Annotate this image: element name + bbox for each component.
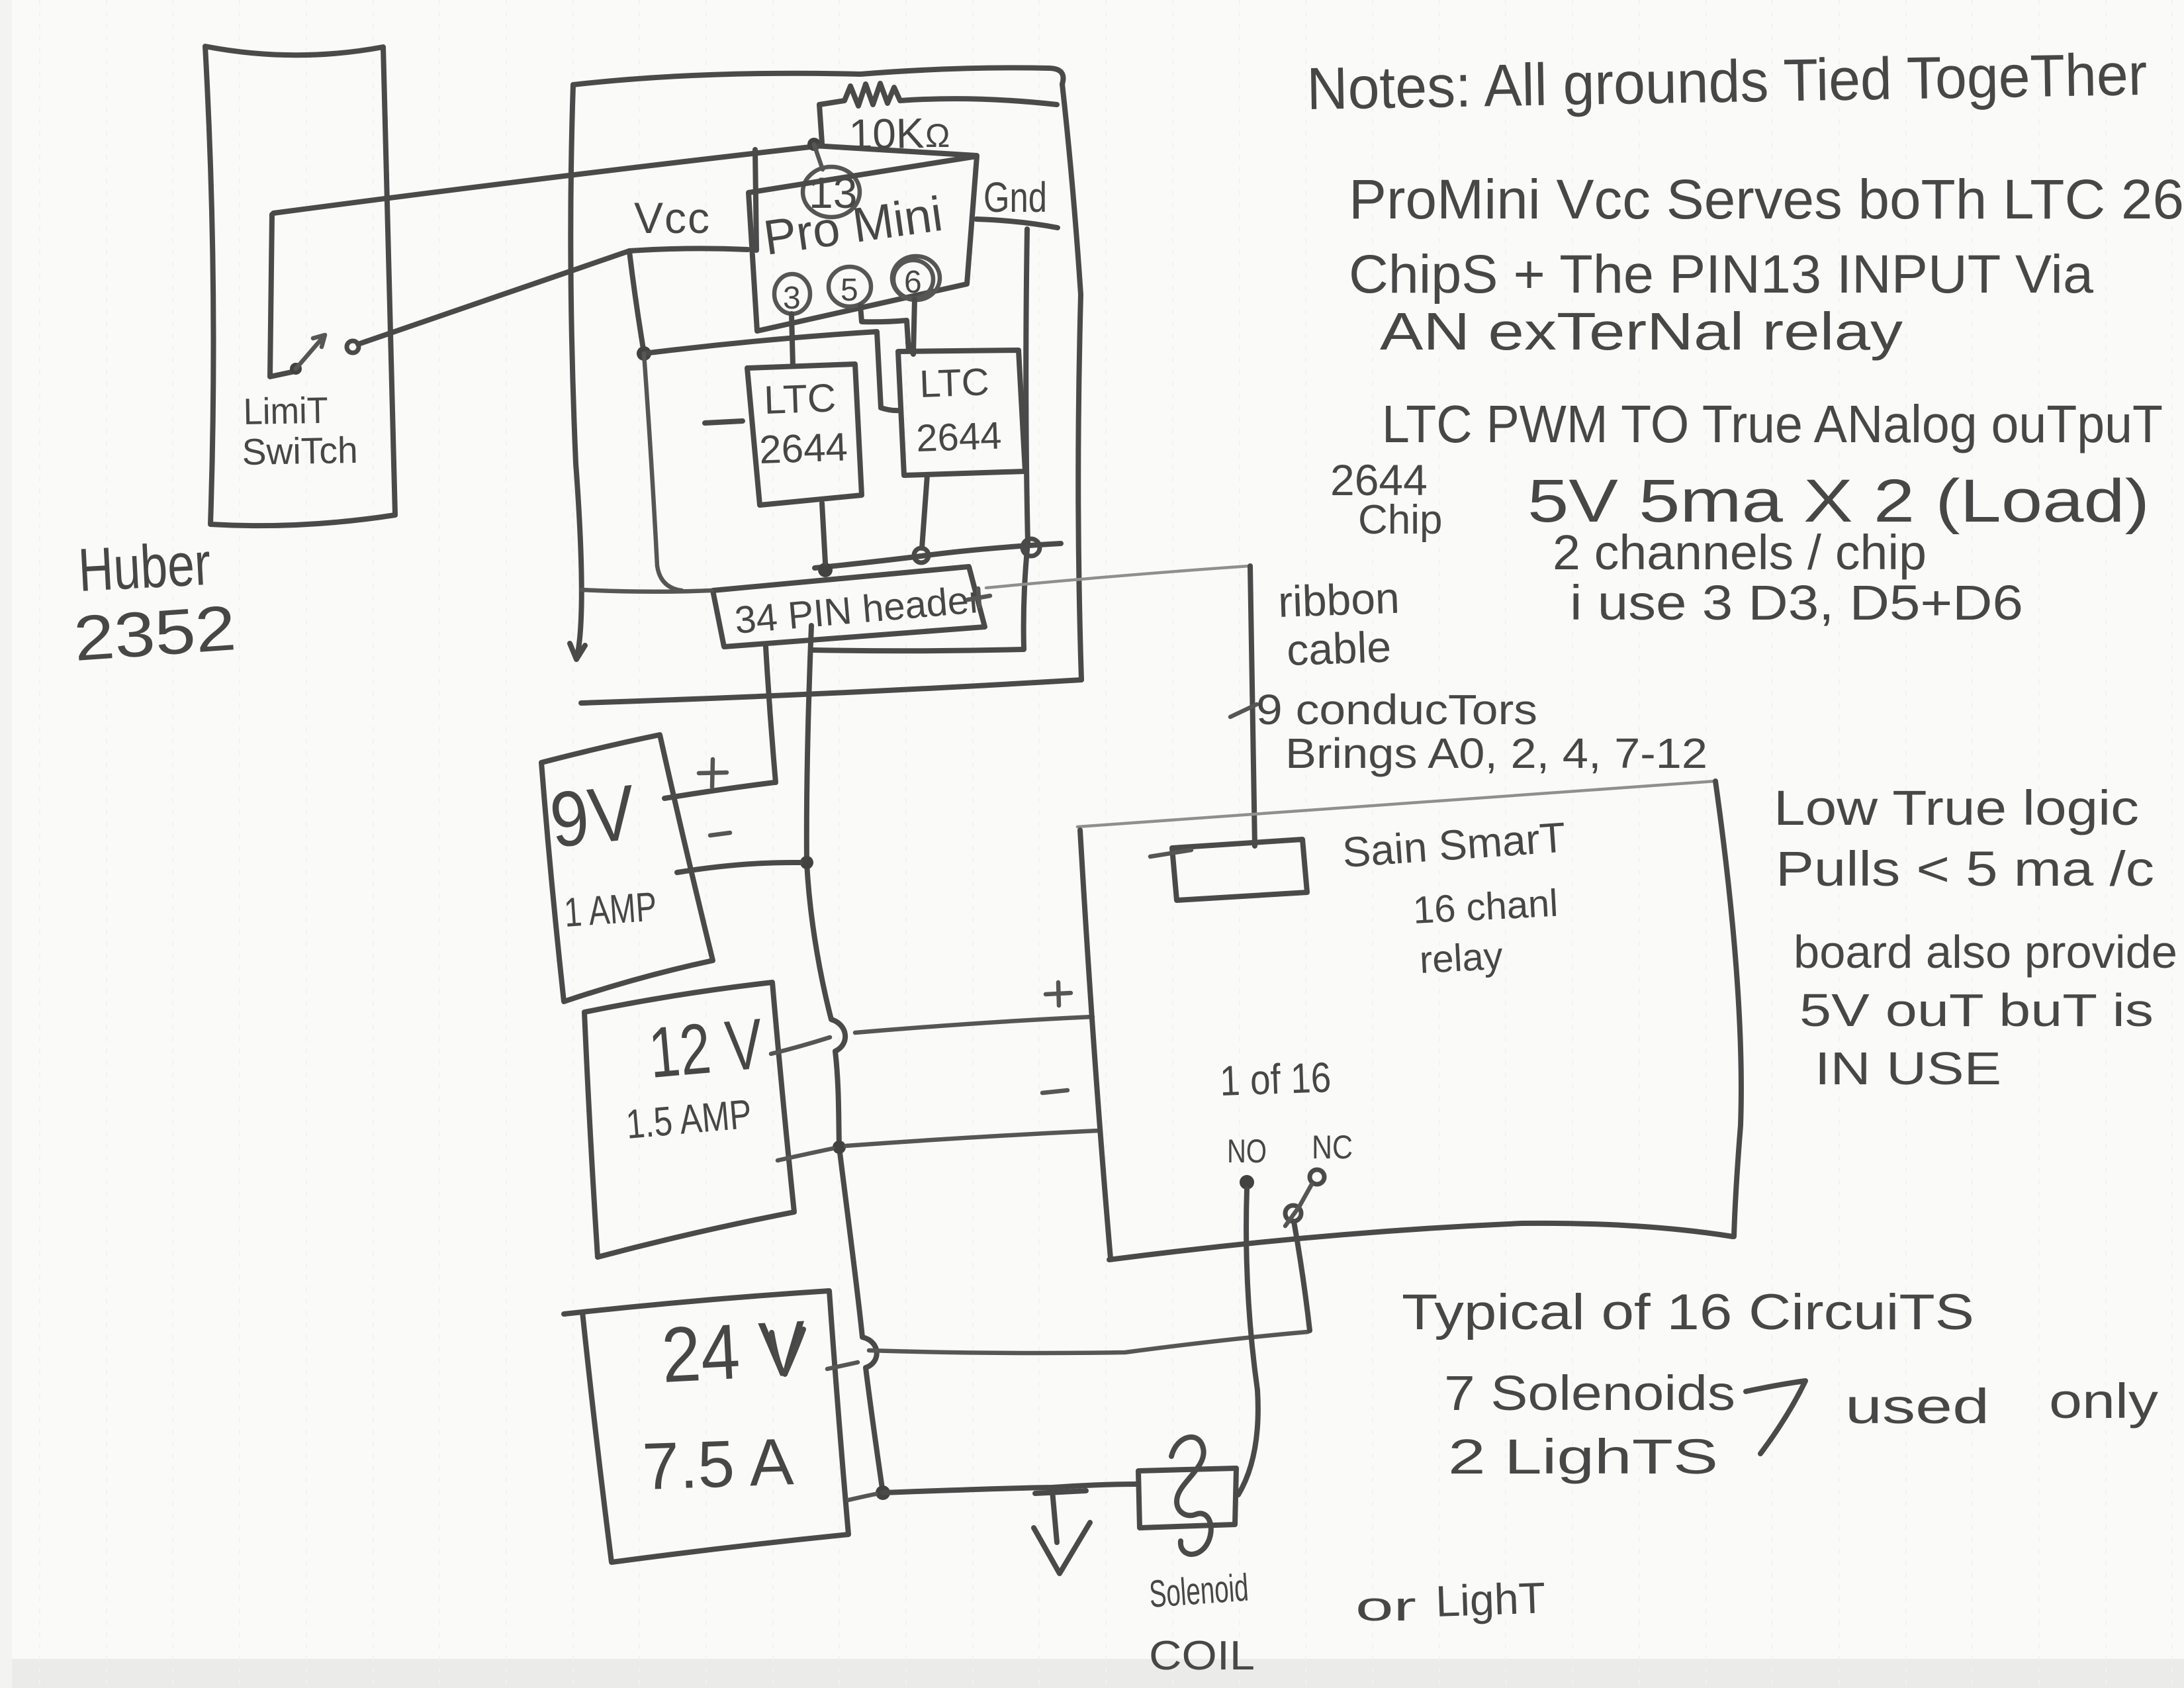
svg-text:LighT: LighT (1435, 1573, 1546, 1626)
svg-text:16 chanl: 16 chanl (1412, 882, 1559, 932)
svg-text:ChipS + The PIN13 INPUT Via: ChipS + The PIN13 INPUT Via (1349, 244, 2093, 305)
svg-text:LTC: LTC (763, 375, 837, 422)
svg-text:relay: relay (1418, 934, 1504, 981)
svg-text:2644: 2644 (758, 424, 848, 472)
svg-text:12 V: 12 V (645, 1003, 766, 1093)
svg-text:Chip: Chip (1358, 497, 1443, 543)
svg-text:3: 3 (783, 281, 801, 316)
svg-text:cable: cable (1286, 622, 1392, 675)
svg-text:AN exTerNal relay: AN exTerNal relay (1380, 302, 1903, 361)
svg-text:9 conducTors: 9 conducTors (1256, 686, 1537, 733)
svg-text:7 Solenoids: 7 Solenoids (1444, 1366, 1735, 1421)
svg-text:9V: 9V (546, 769, 639, 865)
svg-text:ribbon: ribbon (1277, 573, 1400, 626)
svg-text:NC: NC (1312, 1129, 1353, 1166)
svg-text:24 V: 24 V (659, 1305, 808, 1399)
svg-text:5: 5 (841, 273, 858, 308)
svg-text:Ω: Ω (925, 117, 950, 154)
svg-text:Brings A0, 2, 4, 7-12: Brings A0, 2, 4, 7-12 (1285, 729, 1707, 777)
svg-text:5V ouT buT is: 5V ouT buT is (1799, 984, 2154, 1036)
svg-text:10K: 10K (848, 109, 925, 158)
svg-text:board also provide: board also provide (1794, 926, 2177, 978)
svg-text:COIL: COIL (1149, 1633, 1255, 1679)
svg-text:6: 6 (904, 265, 922, 300)
svg-text:2644: 2644 (915, 414, 1002, 460)
svg-text:NO: NO (1227, 1133, 1267, 1170)
svg-text:Solenoid: Solenoid (1148, 1566, 1250, 1616)
svg-text:2352: 2352 (71, 592, 238, 675)
svg-text:Pulls < 5 ma /c: Pulls < 5 ma /c (1776, 841, 2154, 896)
svg-text:2 LighTS: 2 LighTS (1448, 1429, 1718, 1484)
svg-text:Typical of 16 CircuiTS: Typical of 16 CircuiTS (1402, 1284, 1974, 1340)
svg-text:Gnd: Gnd (983, 173, 1047, 221)
svg-text:2 channels / chip: 2 channels / chip (1553, 525, 1927, 580)
svg-text:Low True logic: Low True logic (1774, 780, 2139, 835)
svg-text:1 of 16: 1 of 16 (1219, 1053, 1332, 1105)
svg-text:i use 3 D3, D5+D6: i use 3 D3, D5+D6 (1570, 575, 2023, 630)
svg-text:IN USE: IN USE (1815, 1043, 2001, 1094)
svg-text:ProMini Vcc Serves boTh LTC 26: ProMini Vcc Serves boTh LTC 26 (1349, 168, 2184, 230)
svg-text:Vcc: Vcc (634, 193, 711, 242)
svg-text:1 AMP: 1 AMP (563, 884, 658, 936)
svg-text:LimiT: LimiT (243, 389, 328, 432)
svg-text:or: or (1355, 1584, 1416, 1630)
svg-text:7.5 A: 7.5 A (641, 1425, 795, 1504)
svg-text:LTC PWM TO True ANalog ouTpuT: LTC PWM TO True ANalog ouTpuT (1382, 395, 2163, 453)
svg-text:only: only (2049, 1374, 2158, 1429)
svg-text:SwiTch: SwiTch (242, 429, 358, 473)
svg-text:LTC: LTC (919, 360, 989, 406)
svg-text:Huber: Huber (77, 530, 212, 604)
svg-text:used: used (1845, 1379, 1989, 1434)
